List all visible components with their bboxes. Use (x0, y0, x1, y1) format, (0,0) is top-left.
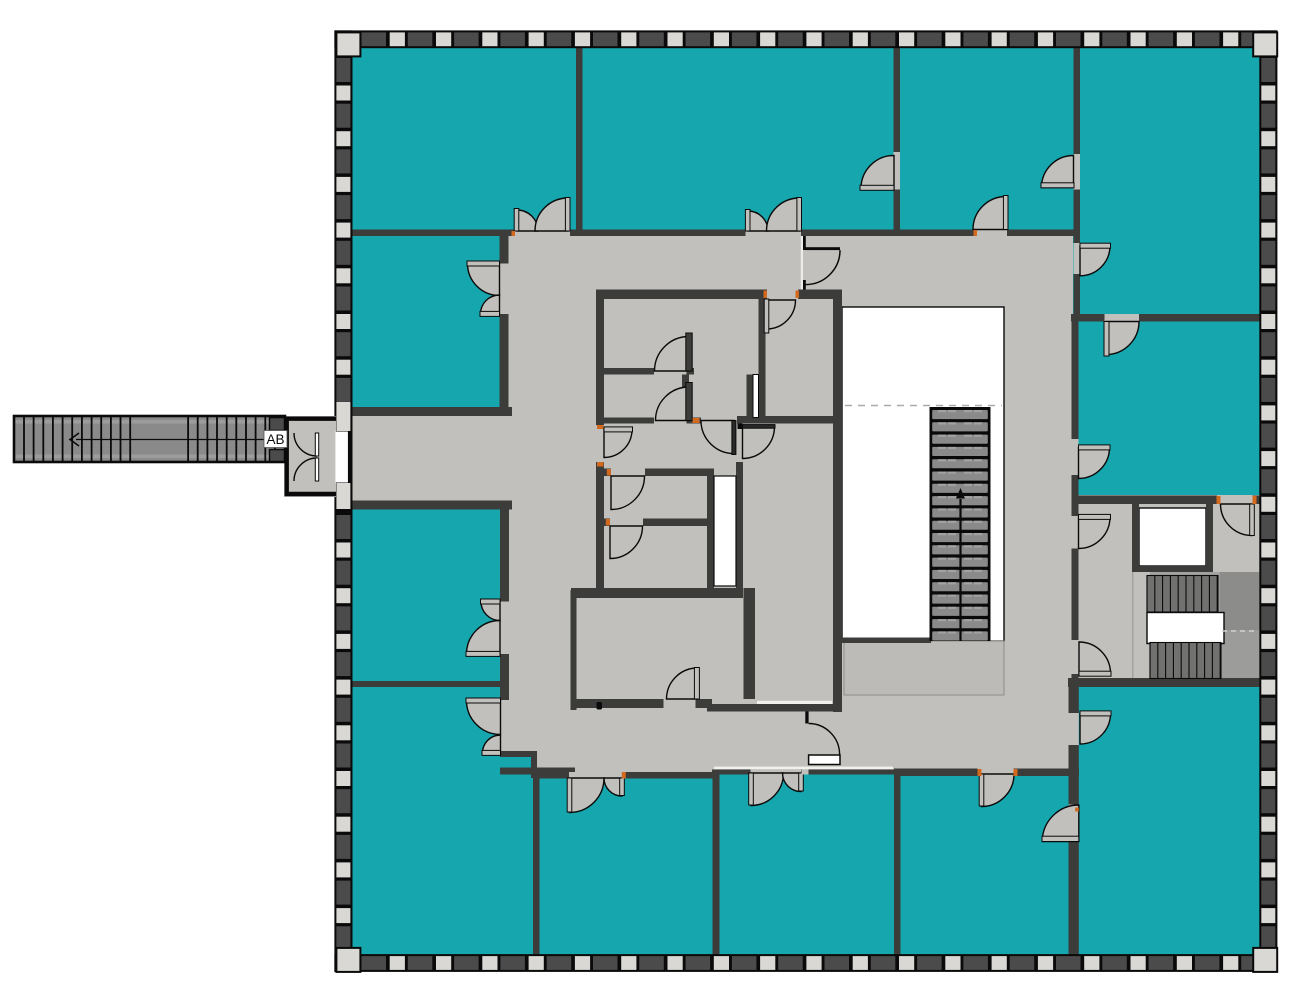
svg-text:AB: AB (266, 432, 284, 447)
